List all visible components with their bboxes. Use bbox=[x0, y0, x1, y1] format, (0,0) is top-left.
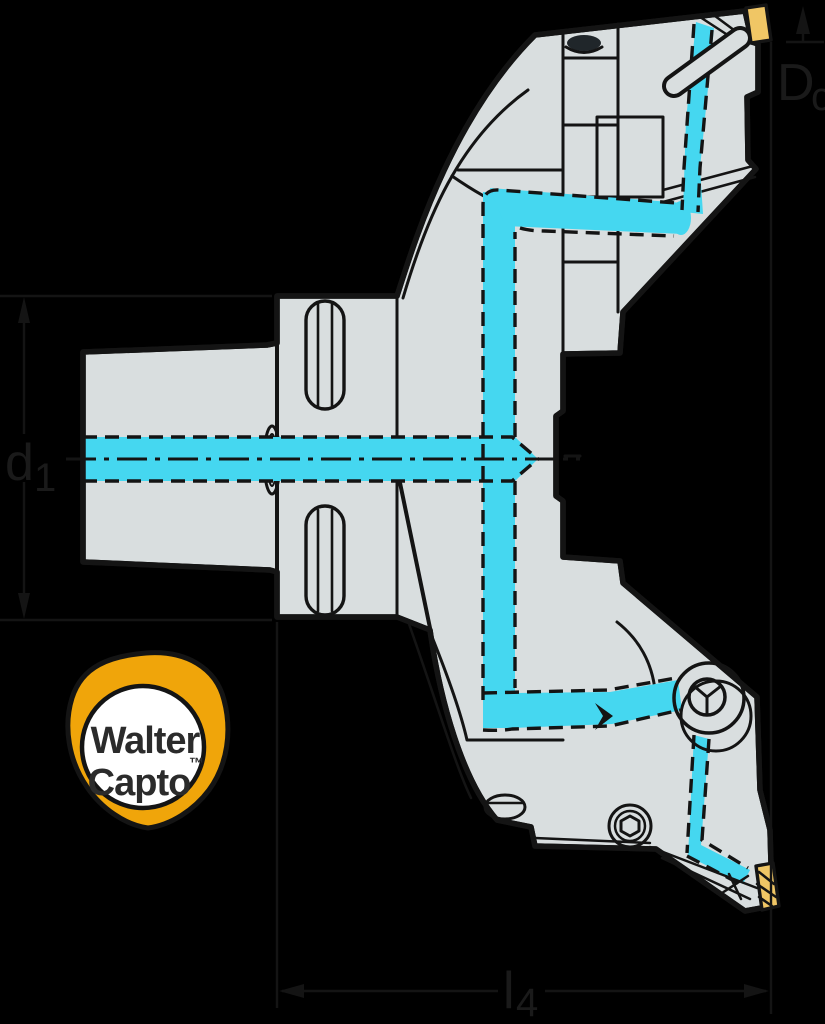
badge-line2: Capto bbox=[88, 762, 191, 804]
coolant-riser bbox=[483, 192, 515, 722]
d1-arrow-down bbox=[18, 593, 30, 619]
dimension-dc: D c bbox=[777, 6, 825, 119]
badge-line1: Walter bbox=[91, 720, 201, 762]
drawing-canvas: d 1 D c l 4 Walter Capto ™ bbox=[0, 0, 825, 1024]
l4-arrow-left bbox=[279, 984, 304, 998]
l4-arrow-right bbox=[744, 984, 769, 998]
d1-label: d bbox=[5, 434, 34, 492]
d1-arrow-up bbox=[18, 297, 30, 323]
dc-label-sub: c bbox=[811, 75, 825, 119]
l4-label-sub: 4 bbox=[516, 981, 538, 1024]
walter-capto-badge: Walter Capto ™ bbox=[68, 653, 228, 828]
d1-label-sub: 1 bbox=[34, 456, 56, 500]
l4-label: l bbox=[503, 962, 515, 1020]
cutting-insert-bottom bbox=[756, 863, 779, 910]
dc-arrow-up bbox=[796, 6, 810, 34]
tool-cross-section-drawing: d 1 D c l 4 Walter Capto ™ bbox=[0, 0, 825, 1024]
cutting-insert-top bbox=[746, 5, 771, 43]
dc-label: D bbox=[777, 54, 815, 112]
badge-trademark: ™ bbox=[189, 755, 204, 772]
